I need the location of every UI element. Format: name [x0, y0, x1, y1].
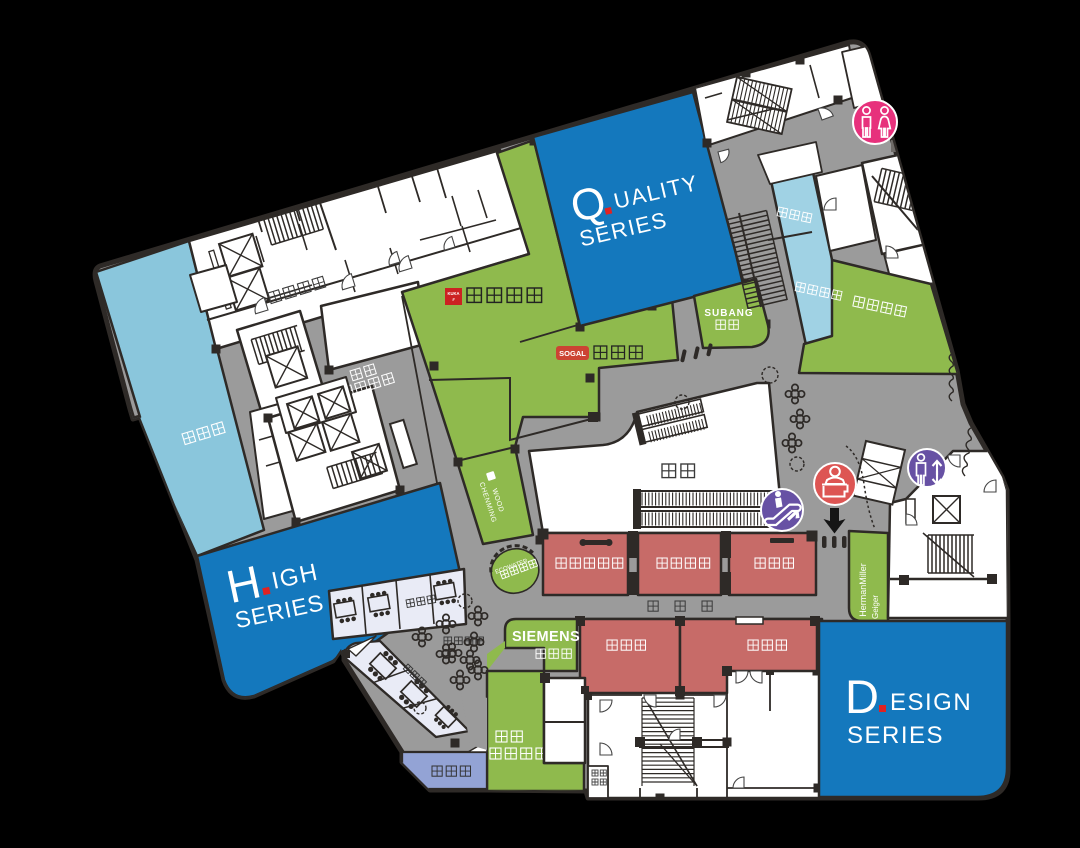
- svg-text:SERIES: SERIES: [847, 722, 944, 749]
- svg-text:ESIGN: ESIGN: [890, 689, 972, 716]
- svg-text:Geiger: Geiger: [871, 595, 880, 619]
- svg-text:D: D: [845, 670, 879, 723]
- svg-text:KUKA: KUKA: [447, 291, 459, 296]
- svg-text:SIEMENS: SIEMENS: [512, 629, 580, 645]
- svg-text:SOGAL: SOGAL: [559, 349, 586, 358]
- svg-text:HermanMiller: HermanMiller: [858, 563, 868, 617]
- svg-text:SUBANG: SUBANG: [704, 308, 753, 319]
